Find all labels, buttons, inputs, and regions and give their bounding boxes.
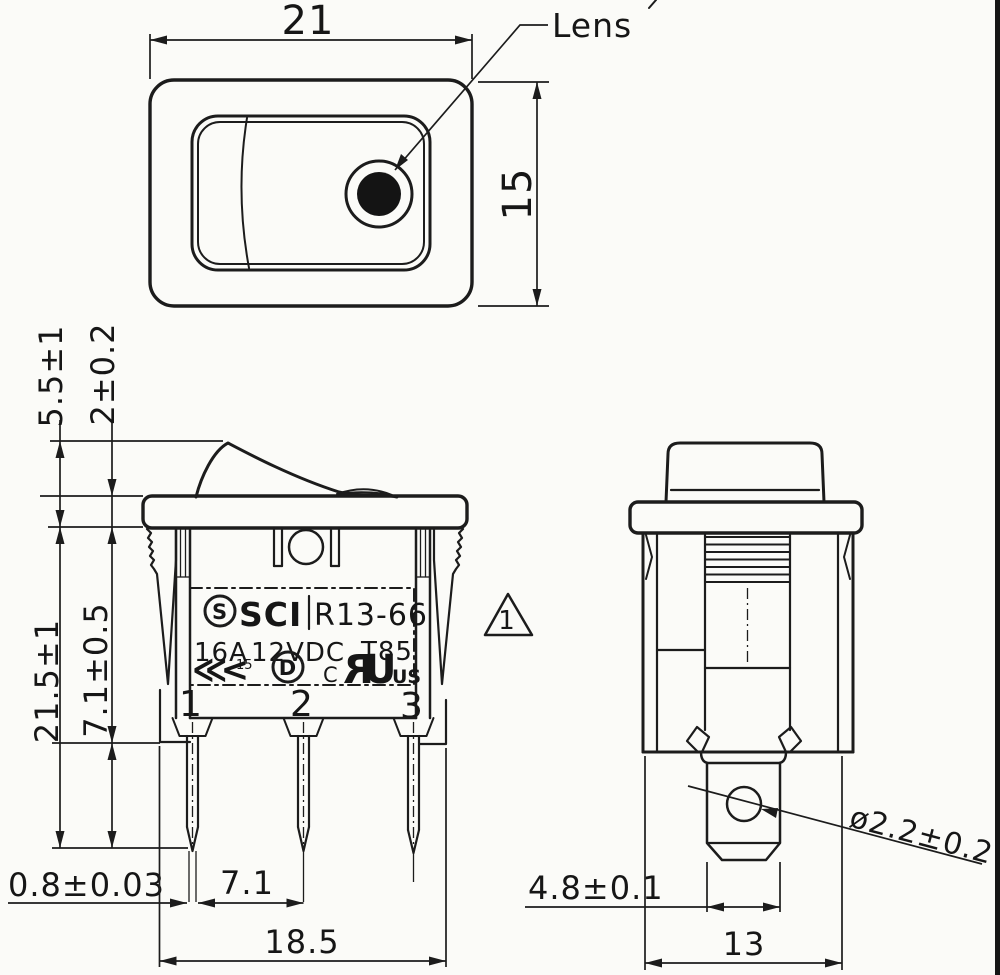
bezel-thickness-dim-text: 2±0.2 [84, 322, 122, 425]
front-view: S SCI R13-66 16A 12VDC T85 ≪< 15 D C R U… [8, 322, 467, 967]
ul-prefix: C [323, 663, 339, 687]
sci-logo-letter: S [212, 600, 228, 624]
arrowhead [533, 289, 542, 306]
d-mark-letter: D [279, 656, 297, 680]
top-view: 21 Lens 15 [150, 0, 632, 306]
lens-label: Lens [552, 6, 632, 45]
arrowhead [825, 959, 842, 968]
tab-shoulder [701, 752, 786, 763]
pivot-hole [289, 530, 323, 564]
approval-number: 15 [236, 658, 253, 673]
top-width-dim-text: 21 [282, 0, 335, 44]
scan-speck [649, 0, 656, 8]
hole-diameter-dim-text: ø2.2±0.2 [846, 800, 997, 872]
ul-suffix: US [392, 666, 421, 688]
right-mounting-ear [434, 529, 463, 684]
body-height-dim-text: 7.1±0.5 [77, 602, 115, 738]
revision-number: 1 [498, 606, 516, 636]
top-height-dim-text: 15 [495, 168, 541, 221]
revision-marker: 1 [485, 594, 532, 636]
front-bezel [143, 496, 467, 528]
rocker-divider-edge [241, 118, 249, 268]
left-mounting-ear [147, 529, 176, 684]
terminal-number-3: 3 [400, 686, 424, 727]
scan-edge-band [995, 0, 1000, 975]
brand-text: SCI [239, 595, 302, 634]
arrowhead [707, 903, 724, 912]
total-height-dim-text: 21.5±1 [28, 619, 66, 743]
terminal-pitch-dim-text: 7.1 [220, 864, 274, 902]
terminal-thickness-dim-text: 0.8±0.03 [8, 866, 165, 904]
model-text: R13-66 [314, 598, 428, 633]
side-rocker-knob [666, 443, 824, 502]
depth-dim-text: 13 [723, 925, 766, 963]
side-view: ø2.2±0.2 4.8±0.1 13 [525, 443, 997, 970]
arrowhead [150, 36, 167, 45]
drawing-canvas: 21 Lens 15 [0, 0, 1000, 975]
arrowhead [455, 36, 472, 45]
arrowhead [763, 903, 780, 912]
actuator-height-dim-text: 5.5±1 [32, 324, 70, 427]
arrowhead [645, 959, 662, 968]
panel-ribs [705, 537, 790, 582]
left-snap-wedge [646, 535, 652, 579]
arrowhead [533, 82, 542, 99]
arrowhead [761, 808, 778, 818]
pivot-posts [274, 528, 339, 566]
inner-block [657, 535, 790, 730]
terminal-width-dim-text: 4.8±0.1 [528, 869, 664, 907]
side-bezel [630, 502, 862, 533]
wall-slots [176, 528, 430, 577]
rocker-switch-dimension-drawing: 21 Lens 15 [0, 0, 1000, 975]
right-snap-wedge [844, 535, 850, 579]
lens-dot [357, 172, 401, 216]
side-terminal-tab [701, 752, 786, 860]
bottom-clips [687, 727, 801, 752]
base-width-dim-text: 18.5 [264, 923, 339, 961]
